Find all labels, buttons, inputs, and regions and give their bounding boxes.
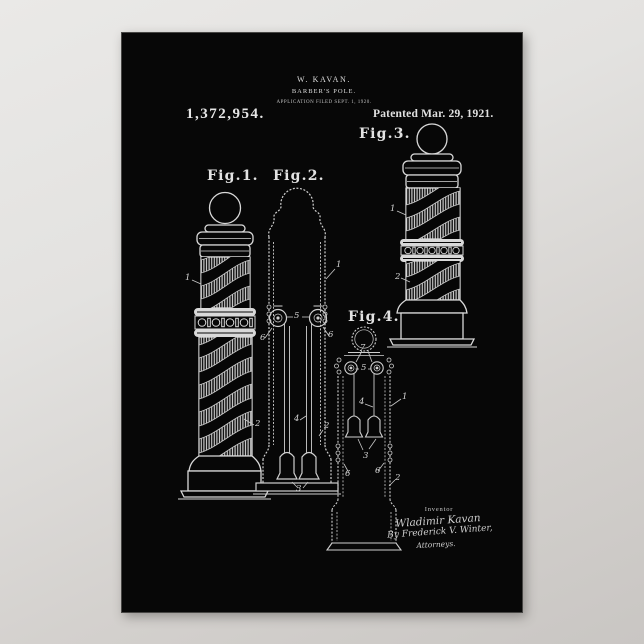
fig2-ref-1: 1 (336, 261, 341, 270)
fig2-ref-3: 3 (296, 485, 301, 494)
fig2-ref-2: 2 (324, 422, 329, 431)
product-photo-background: W. KAVAN. BARBER'S POLE. APPLICATION FIL… (0, 0, 644, 644)
fig3-pole-drawing (387, 124, 477, 347)
patented-date: Patented Mar. 29, 1921. (373, 109, 493, 121)
patent-title: BARBER'S POLE. (292, 89, 356, 96)
fig1-pole-drawing (178, 193, 271, 500)
patent-poster: W. KAVAN. BARBER'S POLE. APPLICATION FIL… (121, 32, 523, 613)
fig4-ref-1: 1 (402, 393, 407, 402)
fig1-label: Fig.1. (207, 169, 259, 183)
fig4-ref-2: 2 (395, 474, 400, 483)
fig2-ref-4: 4 (294, 415, 299, 424)
fig3-ref-2: 2 (395, 273, 400, 282)
fig4-ref-5: 5 (361, 364, 366, 373)
fig1-ref-1: 1 (185, 274, 190, 283)
fig4-section-drawing (327, 327, 401, 550)
fig4-ref-6-left: 6 (345, 470, 350, 479)
fig4-label: Fig.4. (348, 310, 400, 324)
fig2-label: Fig.2. (273, 169, 325, 183)
fig1-ref-2: 2 (255, 420, 260, 429)
inventor-caption: Inventor (425, 507, 453, 514)
patent-inventor-header: W. KAVAN. (297, 76, 351, 84)
fig2-ref-6-left: 6 (260, 334, 265, 343)
patent-number: 1,372,954. (186, 107, 265, 122)
fig2-ref-6-right: 6 (328, 331, 333, 340)
fig4-ref-3: 3 (363, 452, 368, 461)
fig3-label: Fig.3. (359, 127, 411, 141)
fig2-ref-5: 5 (294, 312, 299, 321)
fig4-ref-4: 4 (359, 398, 364, 407)
fig4-ref-6-right: 6 (375, 467, 380, 476)
application-filed-line: APPLICATION FILED SEPT. 1, 1920. (277, 100, 372, 105)
attorneys-caption: Attorneys. (416, 540, 455, 550)
fig2-section-drawing (253, 188, 341, 494)
fig4-ref-7: 7 (360, 344, 365, 353)
fig3-ref-1: 1 (390, 205, 395, 214)
